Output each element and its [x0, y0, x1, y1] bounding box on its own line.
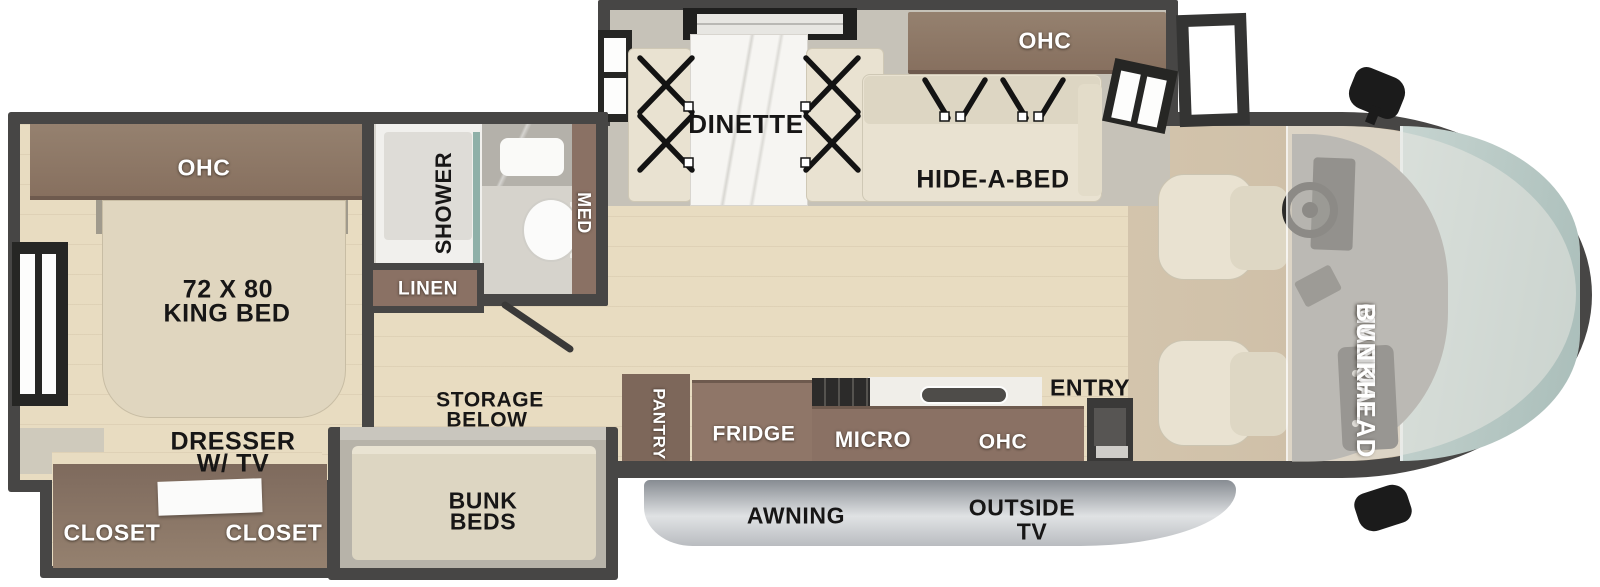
outside-tv-label-line2: TV	[1017, 521, 1048, 544]
bed-type-label: KING BED	[163, 302, 290, 327]
fridge-label: FRIDGE	[713, 424, 796, 445]
awning-label: AWNING	[747, 505, 845, 528]
storage-below-label-line2: BELOW	[446, 410, 527, 431]
shower-label: SHOWER	[433, 152, 455, 255]
closet-right-label: CLOSET	[226, 522, 323, 545]
med-label: MED	[575, 192, 593, 234]
pantry-label: PANTRY	[651, 388, 668, 460]
closet-left-label: CLOSET	[64, 522, 161, 545]
bedroom-ohc-label: OHC	[178, 157, 231, 180]
bathroom-door-swing	[505, 305, 570, 349]
micro-label: MICRO	[835, 429, 911, 451]
bunk-beds-label-line2: BEDS	[450, 511, 516, 534]
kitchen-ohc-label: OHC	[979, 432, 1027, 453]
outside-tv-label-line1: OUTSIDE	[969, 497, 1075, 520]
rv-floor-plan: OHC 72 X 80 KING BED DRESSER W/ TV CLOSE…	[0, 0, 1600, 587]
linen-label: LINEN	[398, 280, 458, 299]
hide-a-bed-label: HIDE-A-BED	[916, 168, 1069, 193]
storage-below-label-line1: STORAGE	[436, 390, 544, 411]
entry-label: ENTRY	[1050, 377, 1130, 400]
overhead-bunk-line3: BUNK	[1350, 303, 1381, 382]
living-ohc-label: OHC	[1019, 30, 1072, 53]
dinette-label: DINETTE	[688, 111, 803, 137]
dresser-label-line2: W/ TV	[197, 452, 269, 477]
